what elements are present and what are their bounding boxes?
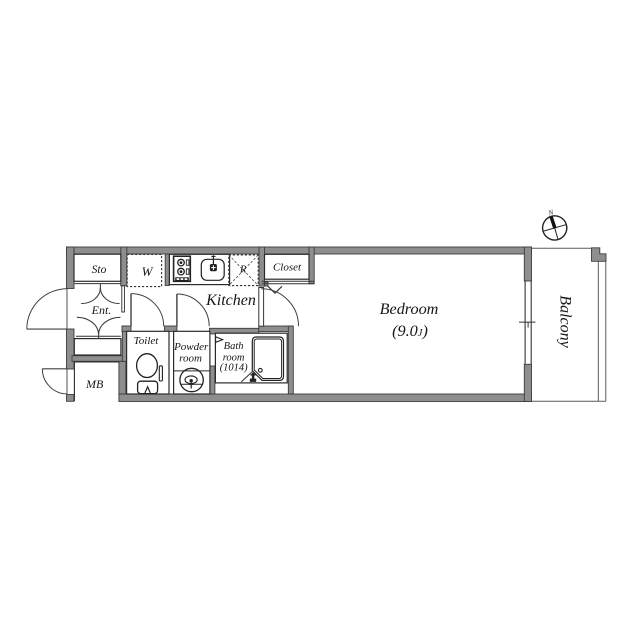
- svg-text:Bath: Bath: [224, 341, 244, 352]
- svg-text:room: room: [179, 352, 202, 364]
- svg-text:Bedroom: Bedroom: [380, 300, 439, 318]
- svg-text:(9.0J): (9.0J): [392, 322, 428, 340]
- svg-text:Ent.: Ent.: [91, 303, 112, 317]
- svg-text:Kitchen: Kitchen: [205, 292, 256, 309]
- svg-text:Balcony: Balcony: [557, 295, 574, 348]
- svg-text:Closet: Closet: [273, 261, 302, 273]
- svg-text:(1014): (1014): [220, 363, 248, 374]
- svg-text:R: R: [239, 264, 247, 276]
- svg-text:Toilet: Toilet: [134, 335, 160, 347]
- svg-text:Powder: Powder: [173, 341, 209, 353]
- svg-text:Sto: Sto: [92, 264, 107, 276]
- svg-text:MB: MB: [85, 377, 104, 391]
- svg-text:W: W: [142, 264, 154, 279]
- svg-text:room: room: [223, 352, 245, 363]
